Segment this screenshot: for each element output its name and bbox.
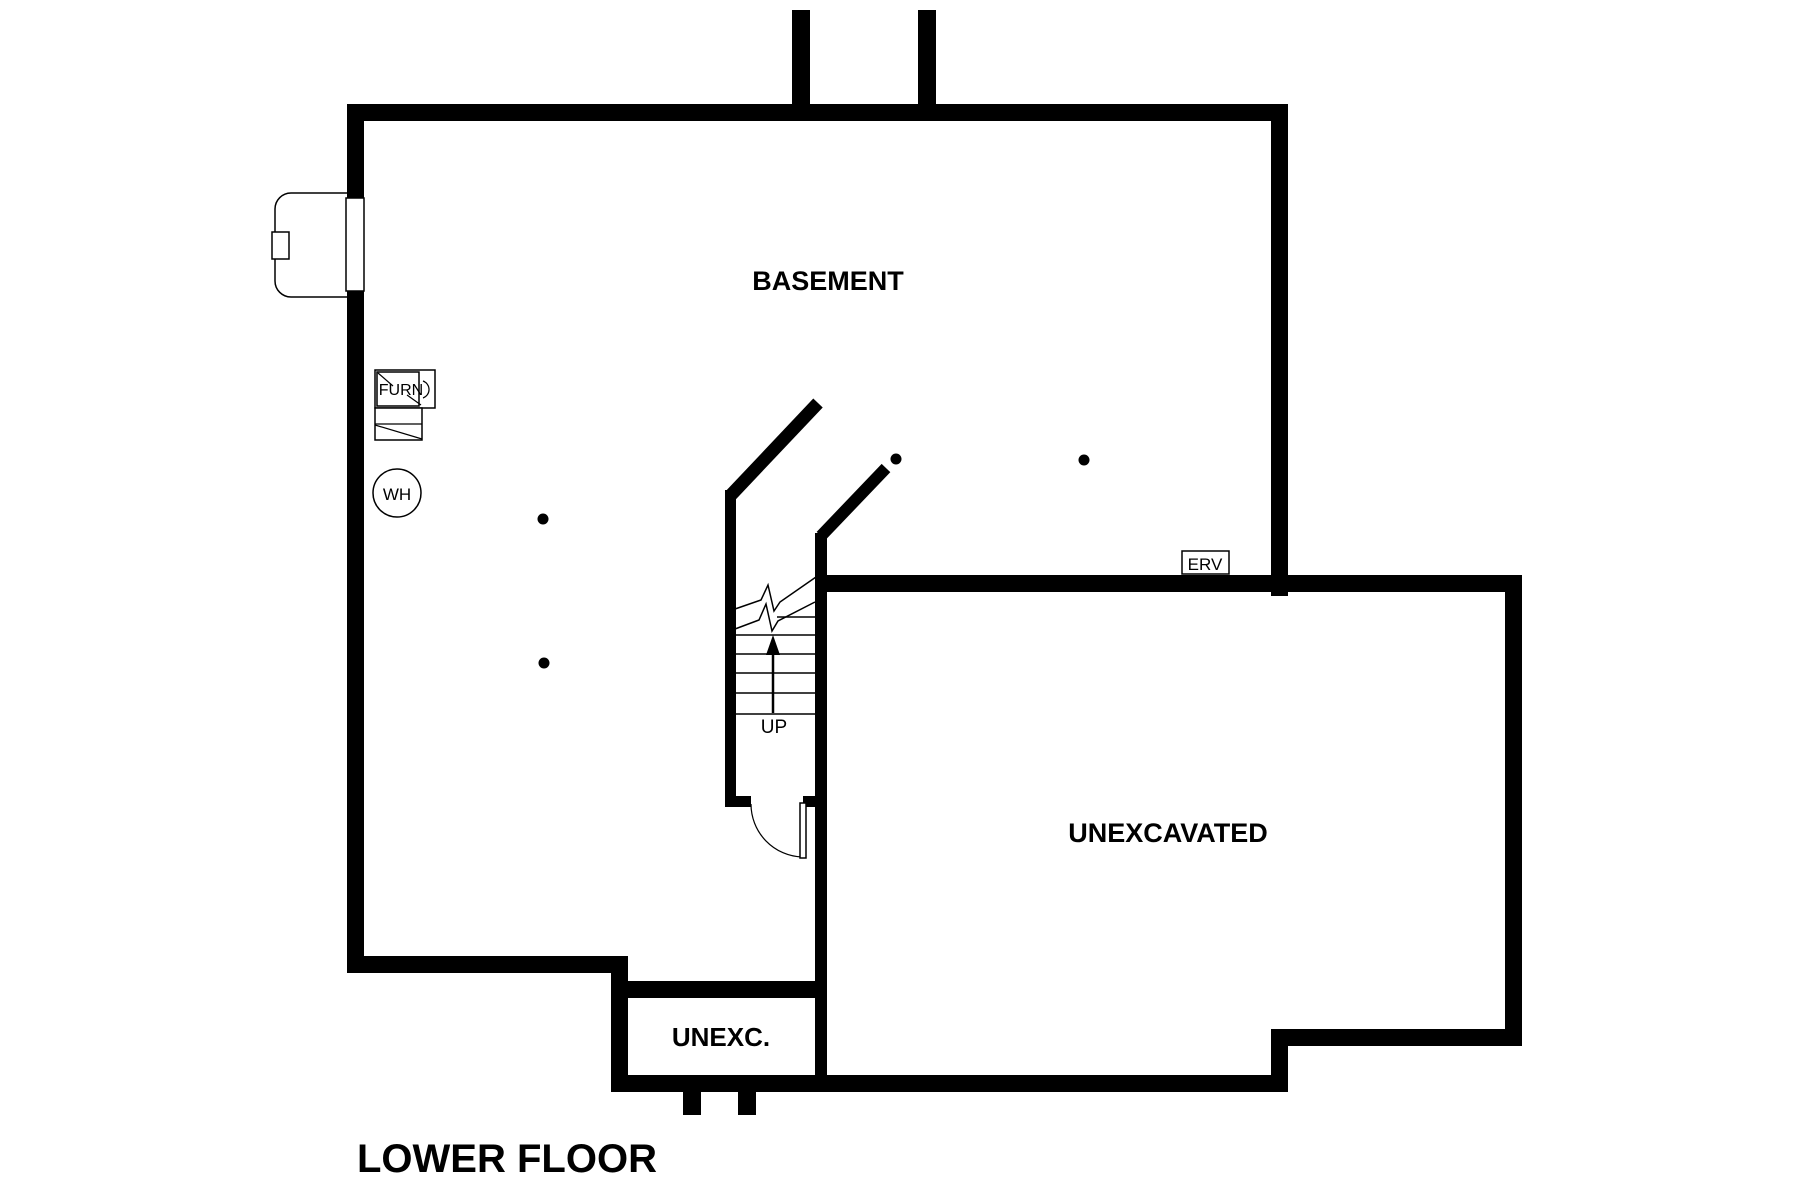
- post-dot-4: [1079, 455, 1090, 466]
- bottom-wall-right: [1271, 1029, 1522, 1046]
- floor-plan-drawing: UP FURN WH ERV BASEMENT UNEXCAVATED UNEX…: [0, 0, 1800, 1200]
- left-wall-window: [346, 198, 364, 291]
- door-leaf: [800, 803, 806, 858]
- up-label: UP: [761, 717, 787, 738]
- stair-break-line-upper: [735, 577, 816, 611]
- furnace-label: FURN: [379, 382, 423, 399]
- stair-left-wall: [725, 490, 736, 807]
- bottom-wall-stub-1: [683, 1092, 701, 1115]
- post-dot-1: [538, 514, 549, 525]
- stair-bottom-wall-left: [725, 796, 751, 807]
- erv-symbol: ERV: [1182, 551, 1229, 574]
- bumpout-notch: [272, 232, 289, 259]
- unexcavated-top-wall: [815, 575, 1522, 592]
- basement-bottom-wall: [347, 956, 628, 973]
- unexcavated-walls: [611, 575, 1522, 1092]
- basement-room-label: BASEMENT: [752, 266, 904, 296]
- top-wall-stub-2: [918, 10, 936, 104]
- stair-door: [751, 803, 806, 858]
- water-heater-symbol: WH: [373, 469, 421, 517]
- stairwell-diagonal-wall-left: [731, 403, 818, 495]
- floor-plan-page: UP FURN WH ERV BASEMENT UNEXCAVATED UNEX…: [0, 0, 1800, 1200]
- basement-left-wall-lower: [347, 291, 364, 973]
- unexc-small-room-label: UNEXC.: [672, 1022, 770, 1052]
- post-dot-2: [539, 658, 550, 669]
- top-wall-stub-1: [792, 10, 810, 104]
- unexcavated-room-label: UNEXCAVATED: [1068, 818, 1268, 848]
- basement-right-wall: [1271, 104, 1288, 596]
- page-title: LOWER FLOOR: [357, 1137, 657, 1181]
- unexc-top-wall: [628, 981, 816, 998]
- post-dots: [538, 454, 1090, 669]
- erv-label: ERV: [1188, 555, 1223, 574]
- basement-top-wall: [347, 104, 1288, 121]
- bottom-wall-long: [611, 1075, 1288, 1092]
- stairs: UP: [735, 577, 816, 738]
- furnace-symbol: FURN: [375, 370, 435, 440]
- basement-left-wall-upper: [347, 104, 364, 198]
- post-dot-3: [891, 454, 902, 465]
- up-arrow-head: [766, 635, 780, 655]
- unexcavated-right-wall: [1505, 575, 1522, 1046]
- unexc-left-step-wall: [611, 956, 628, 1092]
- bottom-wall-stub-2: [738, 1092, 756, 1115]
- stair-right-wall: [815, 533, 827, 1092]
- door-swing-arc: [751, 804, 802, 857]
- water-heater-label: WH: [383, 485, 411, 504]
- stairwell-diagonal-wall-right: [821, 468, 886, 536]
